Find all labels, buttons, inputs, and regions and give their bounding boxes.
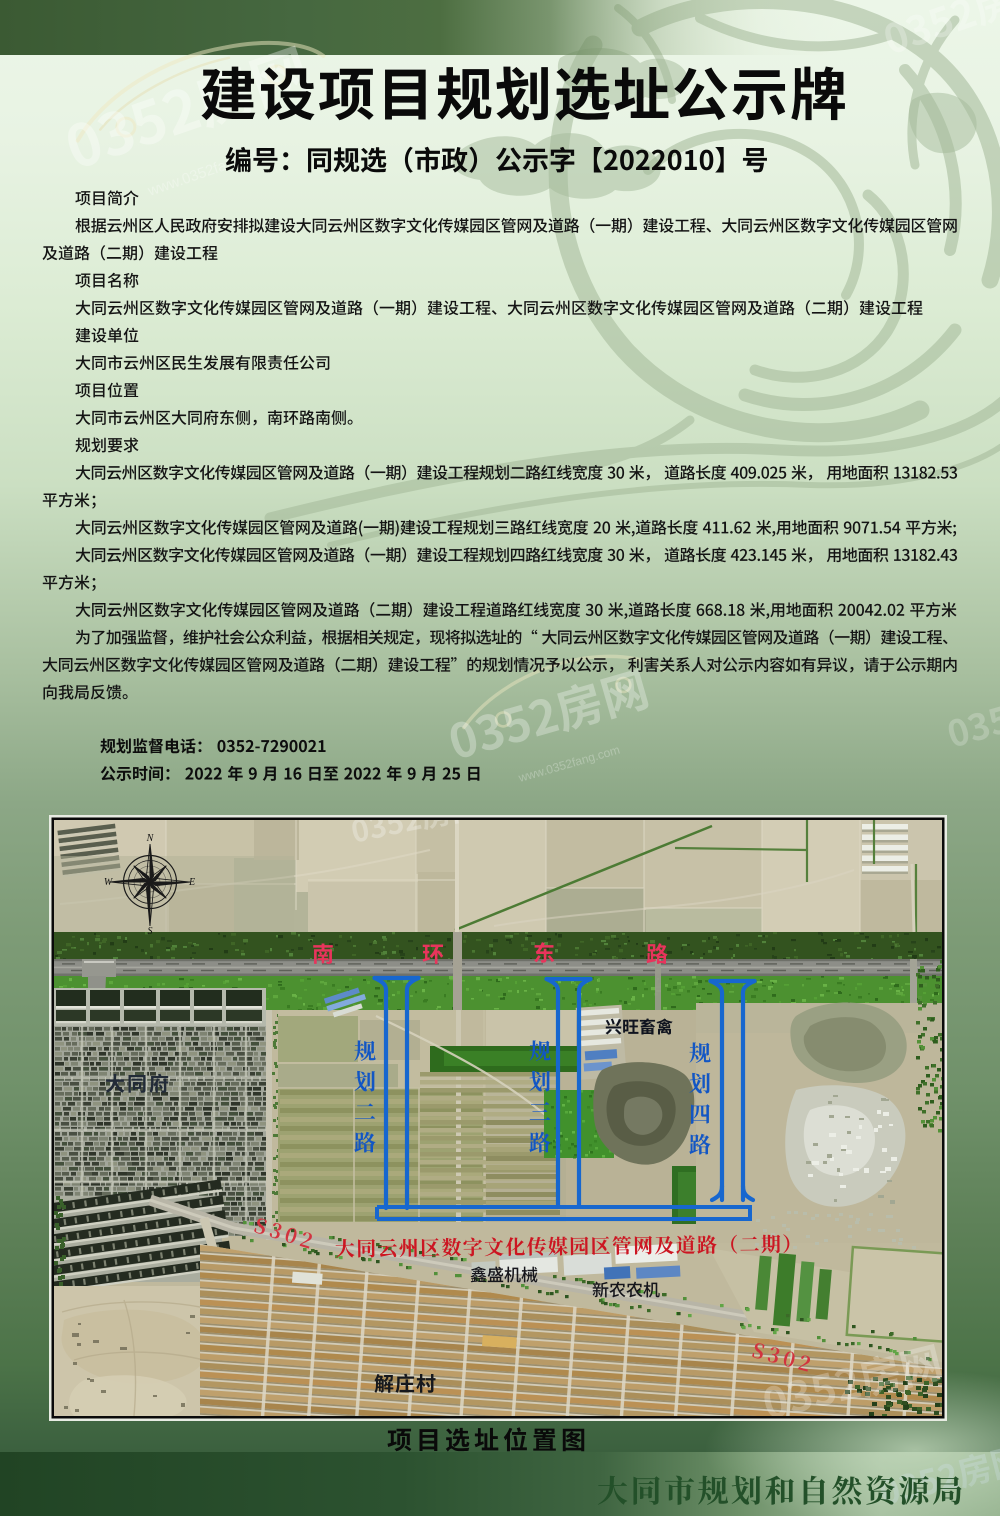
svg-text:N: N xyxy=(146,833,155,844)
svg-text:S: S xyxy=(148,926,153,937)
svg-text:E: E xyxy=(188,877,195,888)
